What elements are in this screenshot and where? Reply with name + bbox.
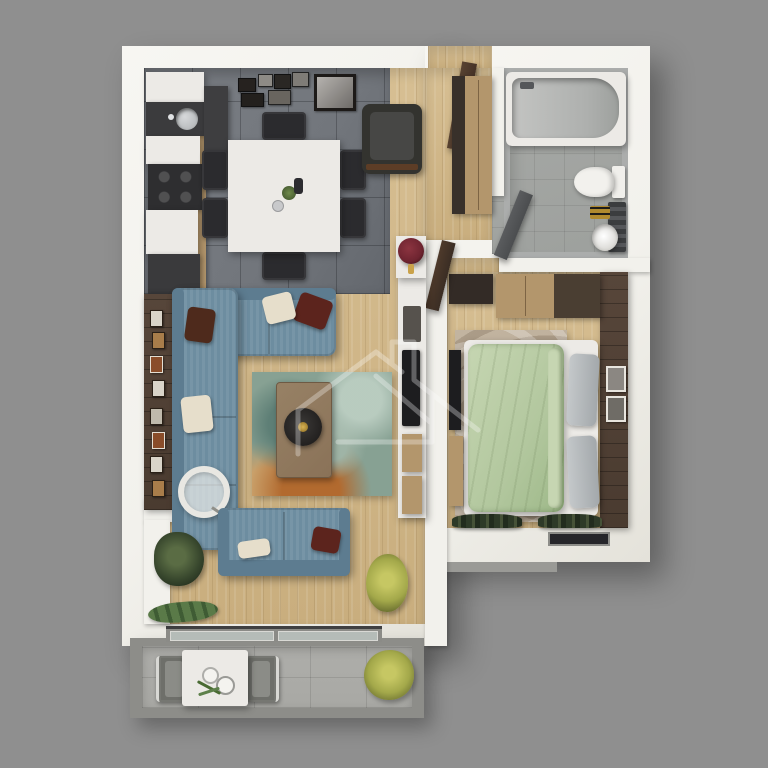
balcony-plant bbox=[364, 650, 414, 700]
yellow-plant bbox=[366, 554, 408, 612]
toilet bbox=[574, 164, 626, 200]
armchair-wood-trim bbox=[366, 164, 418, 170]
armchair-seat bbox=[370, 112, 414, 160]
slider-pane-left bbox=[170, 631, 274, 641]
accent-wall-frame bbox=[150, 356, 163, 373]
basin bbox=[592, 224, 618, 251]
loveseat-back-edge bbox=[218, 560, 350, 576]
table-decor bbox=[294, 178, 303, 194]
wardrobe-door-line bbox=[478, 80, 479, 210]
kitchen-cooktop bbox=[148, 164, 202, 210]
lamp-stem bbox=[408, 264, 414, 274]
balcony-chair bbox=[246, 656, 279, 702]
gold-towels bbox=[590, 206, 610, 219]
tray-gold-decor bbox=[298, 422, 308, 432]
picture-frame bbox=[292, 72, 309, 87]
hall-wardrobe bbox=[452, 76, 492, 214]
bathroom-bedroom-wall bbox=[499, 258, 650, 272]
bedroom-wardrobe bbox=[496, 274, 600, 318]
coffee-table-tray bbox=[284, 408, 322, 446]
bedroom-wall-frame bbox=[606, 366, 626, 392]
entry-door-opening bbox=[428, 46, 492, 68]
kitchen-cabinet-lower bbox=[146, 210, 198, 254]
hall-bathroom-wall bbox=[492, 68, 504, 196]
table-decor bbox=[272, 200, 284, 212]
bedroom-window-plants bbox=[452, 514, 522, 528]
picture-frame bbox=[241, 93, 264, 107]
console-drawer bbox=[402, 434, 422, 472]
balcony-sliding-door bbox=[166, 626, 382, 642]
bedroom-wall-frame bbox=[606, 396, 626, 422]
slider-rail bbox=[166, 626, 382, 629]
accent-wall-frame bbox=[152, 332, 165, 349]
balcony-table bbox=[182, 650, 248, 706]
kitchen-sink bbox=[176, 108, 198, 130]
console-speaker bbox=[403, 306, 421, 342]
picture-frame bbox=[258, 74, 273, 87]
bed-pillow bbox=[566, 435, 600, 508]
accent-wall-frame bbox=[152, 432, 165, 449]
dining-chair bbox=[202, 150, 228, 190]
bedroom-door-opening bbox=[447, 258, 499, 272]
picture-frame bbox=[268, 90, 291, 105]
loveseat-pillow-red bbox=[310, 526, 342, 554]
red-floor-lamp bbox=[398, 238, 424, 264]
kitchen-sink-counter bbox=[146, 102, 204, 136]
bedroom-dresser bbox=[449, 274, 493, 304]
loveseat-cushion-seam bbox=[283, 512, 285, 560]
dining-chair bbox=[262, 112, 306, 140]
dining-chair bbox=[202, 198, 228, 238]
balcony-chair-seat bbox=[165, 661, 183, 697]
throw-pillow-brown bbox=[184, 306, 216, 344]
bedroom-tv-panel bbox=[449, 350, 461, 430]
large-picture-frame bbox=[314, 74, 356, 111]
dining-chair bbox=[262, 252, 306, 280]
loveseat-armrest bbox=[218, 508, 229, 576]
dining-chair bbox=[340, 198, 366, 238]
kitchen-cabinet-mid bbox=[146, 136, 200, 164]
dining-table bbox=[228, 140, 340, 252]
washbasin-unit bbox=[590, 202, 626, 254]
console-drawer bbox=[402, 476, 422, 514]
balcony-chair-seat bbox=[252, 661, 270, 697]
accent-wall-frame bbox=[150, 456, 163, 473]
accent-wall-frame bbox=[150, 408, 163, 425]
entry-armchair bbox=[362, 104, 422, 174]
bedroom-ledge bbox=[447, 562, 557, 572]
wardrobe-dark-face bbox=[452, 76, 465, 214]
picture-frame bbox=[274, 74, 291, 89]
accent-wall-frame bbox=[152, 380, 165, 397]
wardrobe-door-line bbox=[525, 276, 526, 316]
tv-console bbox=[398, 278, 426, 518]
bathtub-faucet bbox=[520, 82, 534, 89]
slider-pane-right bbox=[278, 631, 378, 641]
accent-wall-frame bbox=[152, 480, 165, 497]
bedroom-media-console bbox=[449, 436, 463, 506]
floor-plan-render bbox=[0, 0, 768, 768]
kitchen-cabinet-top bbox=[146, 72, 204, 102]
bathtub bbox=[506, 72, 626, 146]
throw-pillow-white bbox=[180, 395, 214, 434]
loveseat-armrest bbox=[339, 508, 350, 576]
toilet-bowl bbox=[574, 167, 614, 197]
bedroom-window-plants bbox=[538, 514, 602, 528]
bed-duvet-fold bbox=[548, 348, 562, 508]
bed-pillow bbox=[566, 353, 600, 426]
kitchen-faucet bbox=[168, 114, 174, 120]
potted-plant bbox=[154, 532, 204, 586]
tv-screen bbox=[402, 350, 420, 426]
wardrobe-dark-doors bbox=[554, 274, 600, 318]
picture-frame bbox=[238, 78, 256, 92]
bedroom-window bbox=[548, 532, 610, 546]
accent-wall-frame bbox=[150, 310, 163, 327]
